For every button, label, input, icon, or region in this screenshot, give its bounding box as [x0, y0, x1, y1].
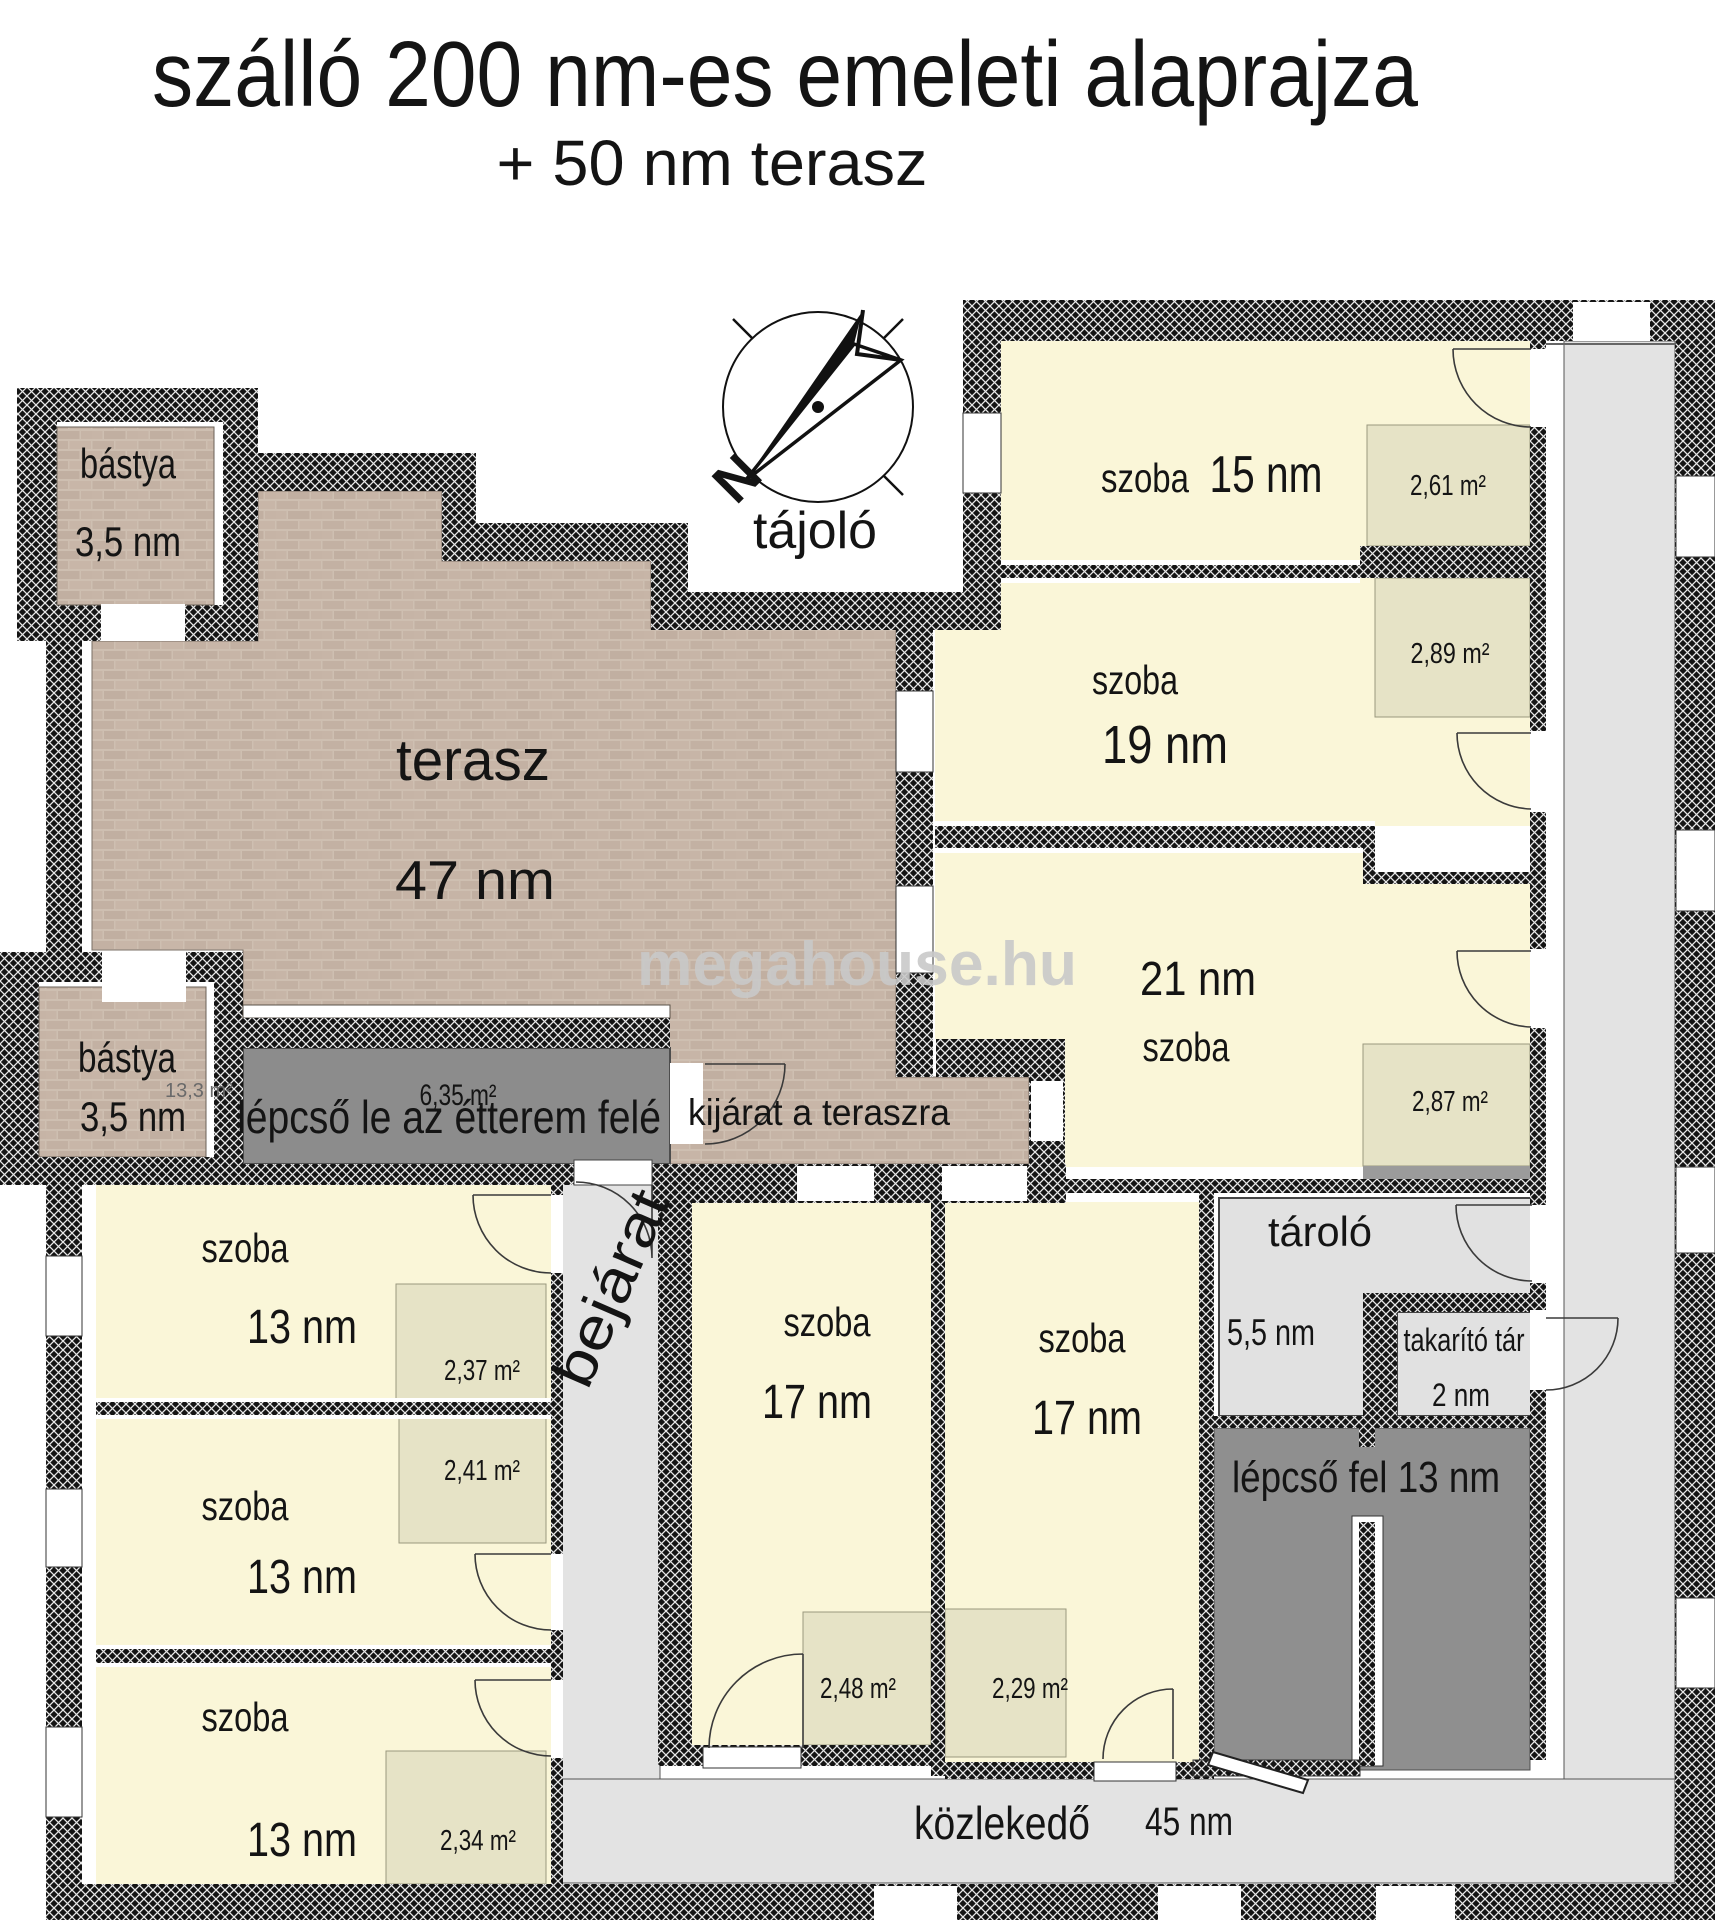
svg-text:3,5 nm: 3,5 nm	[75, 518, 181, 565]
svg-text:47 nm: 47 nm	[395, 849, 555, 911]
svg-text:szoba: szoba	[1143, 1024, 1230, 1070]
svg-text:2 nm: 2 nm	[1432, 1377, 1490, 1413]
svg-text:szoba: szoba	[202, 1225, 289, 1271]
svg-text:terasz: terasz	[396, 728, 550, 793]
svg-text:szoba: szoba	[784, 1299, 871, 1345]
svg-text:13 nm: 13 nm	[247, 1551, 357, 1604]
svg-text:2,37 m²: 2,37 m²	[444, 1355, 520, 1387]
svg-text:13,3 m²: 13,3 m²	[165, 1080, 233, 1102]
svg-text:szoba: szoba	[1101, 455, 1189, 501]
svg-text:13 nm: 13 nm	[247, 1301, 357, 1354]
svg-text:15 nm: 15 nm	[1210, 446, 1323, 504]
svg-text:13 nm: 13 nm	[247, 1814, 357, 1867]
svg-text:17 nm: 17 nm	[1032, 1392, 1142, 1445]
svg-text:2,29 m²: 2,29 m²	[992, 1673, 1068, 1705]
svg-text:2,87 m²: 2,87 m²	[1412, 1086, 1488, 1118]
svg-text:szálló 200 nm-es emeleti alapr: szálló 200 nm-es emeleti alaprajza	[152, 22, 1418, 126]
svg-text:2,89 m²: 2,89 m²	[1411, 638, 1490, 670]
svg-text:szoba: szoba	[1039, 1315, 1126, 1361]
svg-text:bástya: bástya	[80, 440, 176, 487]
svg-text:2,61 m²: 2,61 m²	[1410, 470, 1486, 502]
svg-text:45 nm: 45 nm	[1145, 1800, 1233, 1844]
svg-text:szoba: szoba	[1092, 657, 1178, 703]
svg-text:2,48 m²: 2,48 m²	[820, 1673, 896, 1705]
svg-text:szoba: szoba	[202, 1694, 289, 1740]
svg-text:+ 50 nm terasz: + 50 nm terasz	[497, 127, 928, 199]
svg-text:6,35 m²: 6,35 m²	[420, 1079, 497, 1112]
svg-text:2,41 m²: 2,41 m²	[444, 1455, 520, 1487]
svg-text:bástya: bástya	[78, 1034, 177, 1081]
svg-text:szoba: szoba	[202, 1483, 289, 1529]
svg-text:kijárat a teraszra: kijárat a teraszra	[688, 1092, 950, 1133]
svg-text:tároló: tároló	[1268, 1208, 1372, 1255]
svg-text:lépcső fel 13 nm: lépcső fel 13 nm	[1232, 1453, 1500, 1502]
svg-text:közlekedő: közlekedő	[914, 1797, 1090, 1849]
svg-text:21 nm: 21 nm	[1140, 953, 1256, 1006]
svg-text:tájoló: tájoló	[753, 502, 877, 560]
svg-text:takarító tár: takarító tár	[1404, 1322, 1525, 1358]
svg-text:5,5 nm: 5,5 nm	[1227, 1312, 1315, 1353]
svg-text:2,34 m²: 2,34 m²	[440, 1825, 516, 1857]
svg-text:megahouse.hu: megahouse.hu	[637, 930, 1077, 999]
svg-text:17 nm: 17 nm	[762, 1376, 872, 1429]
svg-text:19 nm: 19 nm	[1102, 715, 1228, 775]
